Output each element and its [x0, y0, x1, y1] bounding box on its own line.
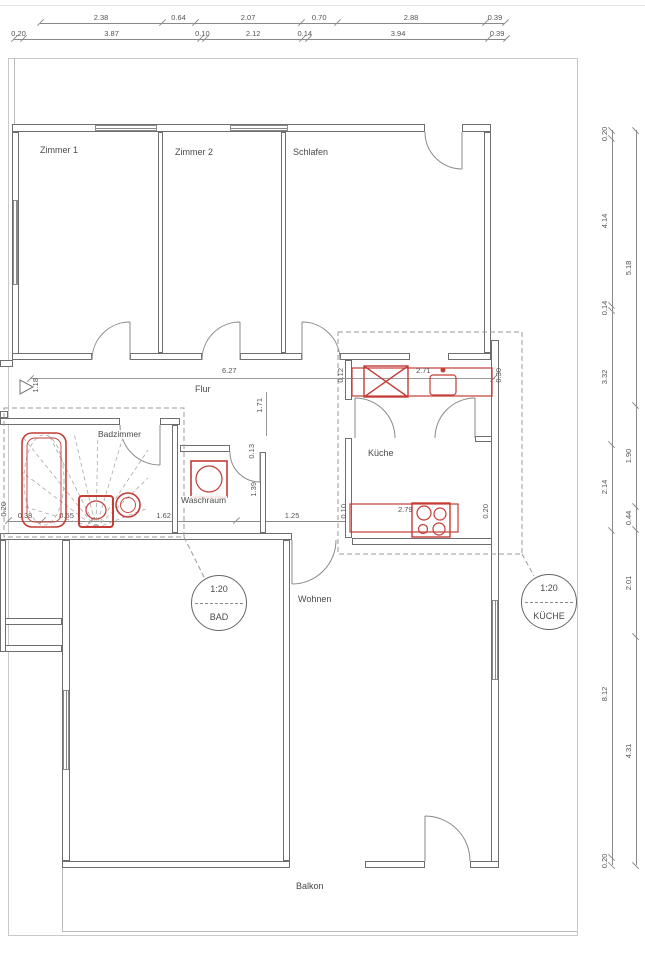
dim-label: 2.14 [601, 480, 609, 495]
wall-kueche-west-lower [345, 438, 352, 538]
window-west [13, 200, 18, 285]
dim-label: 0.14 [601, 300, 609, 315]
detail-scale-kueche: 1:20 [522, 583, 576, 593]
dim-tick [37, 19, 44, 26]
wall-partition-z2-schlafen [281, 132, 286, 353]
dim-tick [608, 527, 615, 534]
detail-marker-bad: 1:20 BAD [191, 575, 247, 631]
detail-marker-kueche: 1:20 KÜCHE [521, 574, 577, 630]
dim-kitchen-bottom-right: 0.20 [482, 504, 490, 519]
room-label-schlafen: Schlafen [293, 148, 328, 158]
room-label-zimmer1: Zimmer 1 [40, 146, 78, 156]
window-east [492, 600, 498, 680]
wall-flur-north-3 [240, 353, 302, 360]
detail-divider [525, 602, 574, 603]
dim-tick [159, 19, 166, 26]
dim-label: 2.01 [625, 575, 633, 590]
dim-label: 2.38 [94, 14, 109, 22]
dim-tick [298, 19, 305, 26]
wall-left-edge [0, 540, 6, 652]
dim-label: 0.20 [601, 854, 609, 869]
window-zimmer2 [230, 125, 288, 131]
wall-top-exterior-right [462, 124, 491, 132]
dim-kitchen-counter-bottom: 2.79 [398, 506, 413, 514]
dim-tick [334, 19, 341, 26]
dim-label: 8.12 [601, 686, 609, 701]
dim-label: 2.07 [241, 14, 256, 22]
dim-label: 3.32 [601, 370, 609, 385]
wall-bad-north-2 [160, 418, 180, 425]
dim-tick [608, 862, 615, 869]
wall-kueche-mid-stub [475, 436, 492, 442]
wall-wohnen-west [283, 540, 290, 861]
dim-tick [192, 19, 199, 26]
dim-label: 4.14 [601, 214, 609, 229]
upper-neighbor-line [14, 58, 15, 124]
wall-wasch-north [180, 445, 230, 452]
dim-label: 2.12 [246, 30, 261, 38]
window-neighbor [63, 690, 69, 770]
dim-chain-right-outer: 5.181.900.442.014.31 [622, 130, 637, 865]
dim-tick [632, 127, 639, 134]
dim-label: 1.25 [285, 512, 300, 520]
dim-label: 0.38 [18, 512, 33, 520]
wall-entry-stub-bottom [0, 411, 8, 418]
dim-tick [632, 402, 639, 409]
wall-flur-north-4 [340, 353, 410, 360]
dim-tick [632, 526, 639, 533]
dim-label: 3.87 [104, 30, 119, 38]
dim-label: 0.14 [297, 30, 312, 38]
room-label-kueche: Küche [368, 449, 394, 459]
dim-label: 0.39 [488, 14, 503, 22]
dim-entry-width: 1.18 [32, 378, 40, 393]
wall-left-stub-2 [0, 645, 62, 652]
dim-label: 0.10 [195, 30, 210, 38]
detail-divider [195, 603, 244, 604]
room-label-balkon: Balkon [296, 882, 324, 892]
dim-bath-wall: 0.20 [0, 502, 8, 517]
dim-label: 0.44 [625, 510, 633, 525]
wall-flur-north-1 [12, 353, 92, 360]
room-label-flur: Flur [195, 385, 211, 395]
dim-tick [608, 854, 615, 861]
wall-partition-z1-z2 [158, 132, 163, 353]
dim-chain-top-1: 2.380.642.070.702.880.39 [40, 10, 505, 24]
dim-label: 0.20 [601, 127, 609, 142]
dim-wasch-door: 0.13 [248, 444, 256, 459]
dim-label: 0.39 [490, 30, 505, 38]
detail-label-bad: BAD [192, 612, 246, 622]
wall-entry-stub-top [0, 360, 13, 367]
wall-flur-north-2 [130, 353, 202, 360]
dim-tick [608, 135, 615, 142]
dim-label: 1.90 [625, 448, 633, 463]
dim-kitchen-top-left: 0.12 [337, 368, 345, 383]
detail-label-kueche: KÜCHE [522, 611, 576, 621]
dim-label: 5.18 [625, 260, 633, 275]
dim-wasch-depth: 1.39 [250, 482, 258, 497]
dim-kitchen-bottom-left: 0.10 [340, 504, 348, 519]
dim-kitchen-counter-top: 2.71 [416, 367, 431, 375]
dim-tick [632, 862, 639, 869]
wall-balkon-1 [62, 861, 290, 868]
wasch-door-dim-line [266, 392, 267, 436]
dim-tick [502, 19, 509, 26]
detail-scale-bad: 1:20 [192, 584, 246, 594]
wall-balkon-3 [470, 861, 499, 868]
dim-chain-right-inner: 0.204.140.143.322.148.120.20 [598, 130, 613, 865]
floor-plan: 2.380.642.070.702.880.39 0.203.870.102.1… [0, 0, 645, 956]
room-label-badzimmer: Badzimmer [97, 430, 142, 439]
wall-kueche-west-upper [345, 360, 352, 400]
dim-label: 4.31 [625, 743, 633, 758]
room-label-zimmer2: Zimmer 2 [175, 148, 213, 158]
dim-label: 2.88 [404, 14, 419, 22]
dim-flur-length: 6.27 [222, 367, 237, 375]
wall-top-exterior [12, 124, 425, 132]
dim-tick [608, 127, 615, 134]
wall-wasch-east [260, 452, 266, 533]
window-zimmer1 [95, 125, 157, 131]
wall-bad-south [0, 533, 292, 540]
dim-label: 1.62 [156, 512, 171, 520]
dim-label: 0.64 [171, 14, 186, 22]
scan-edge-line [0, 5, 645, 6]
wall-balkon-2 [365, 861, 425, 868]
wall-schlafen-east [484, 132, 491, 353]
balkon-edge-bottom [62, 931, 577, 932]
wall-left-stub-1 [0, 618, 62, 625]
dim-tick [632, 503, 639, 510]
room-label-wohnen: Wohnen [298, 595, 331, 605]
flur-dim-line [30, 378, 495, 379]
dim-label: 0.55 [59, 512, 74, 520]
dim-tick [608, 441, 615, 448]
wall-kueche-south [352, 538, 492, 545]
dim-chain-top-2: 0.203.870.102.120.143.940.39 [14, 26, 506, 40]
wall-bad-wasch-partition [172, 425, 178, 533]
room-label-waschraum: Waschraum [180, 496, 227, 505]
wall-flur-north-5 [448, 353, 491, 360]
wall-bad-north-1 [0, 418, 120, 425]
dim-label: 3.94 [391, 30, 406, 38]
dim-kitchen-top-right: 0.30 [495, 368, 503, 383]
dim-chain-bath: 0.380.551.621.25 [8, 508, 348, 522]
dim-label: 0.20 [11, 30, 26, 38]
dim-tick [632, 633, 639, 640]
balkon-edge-side [62, 868, 63, 931]
dim-hall-door: 1.71 [256, 398, 264, 413]
dim-label: 0.70 [312, 14, 327, 22]
